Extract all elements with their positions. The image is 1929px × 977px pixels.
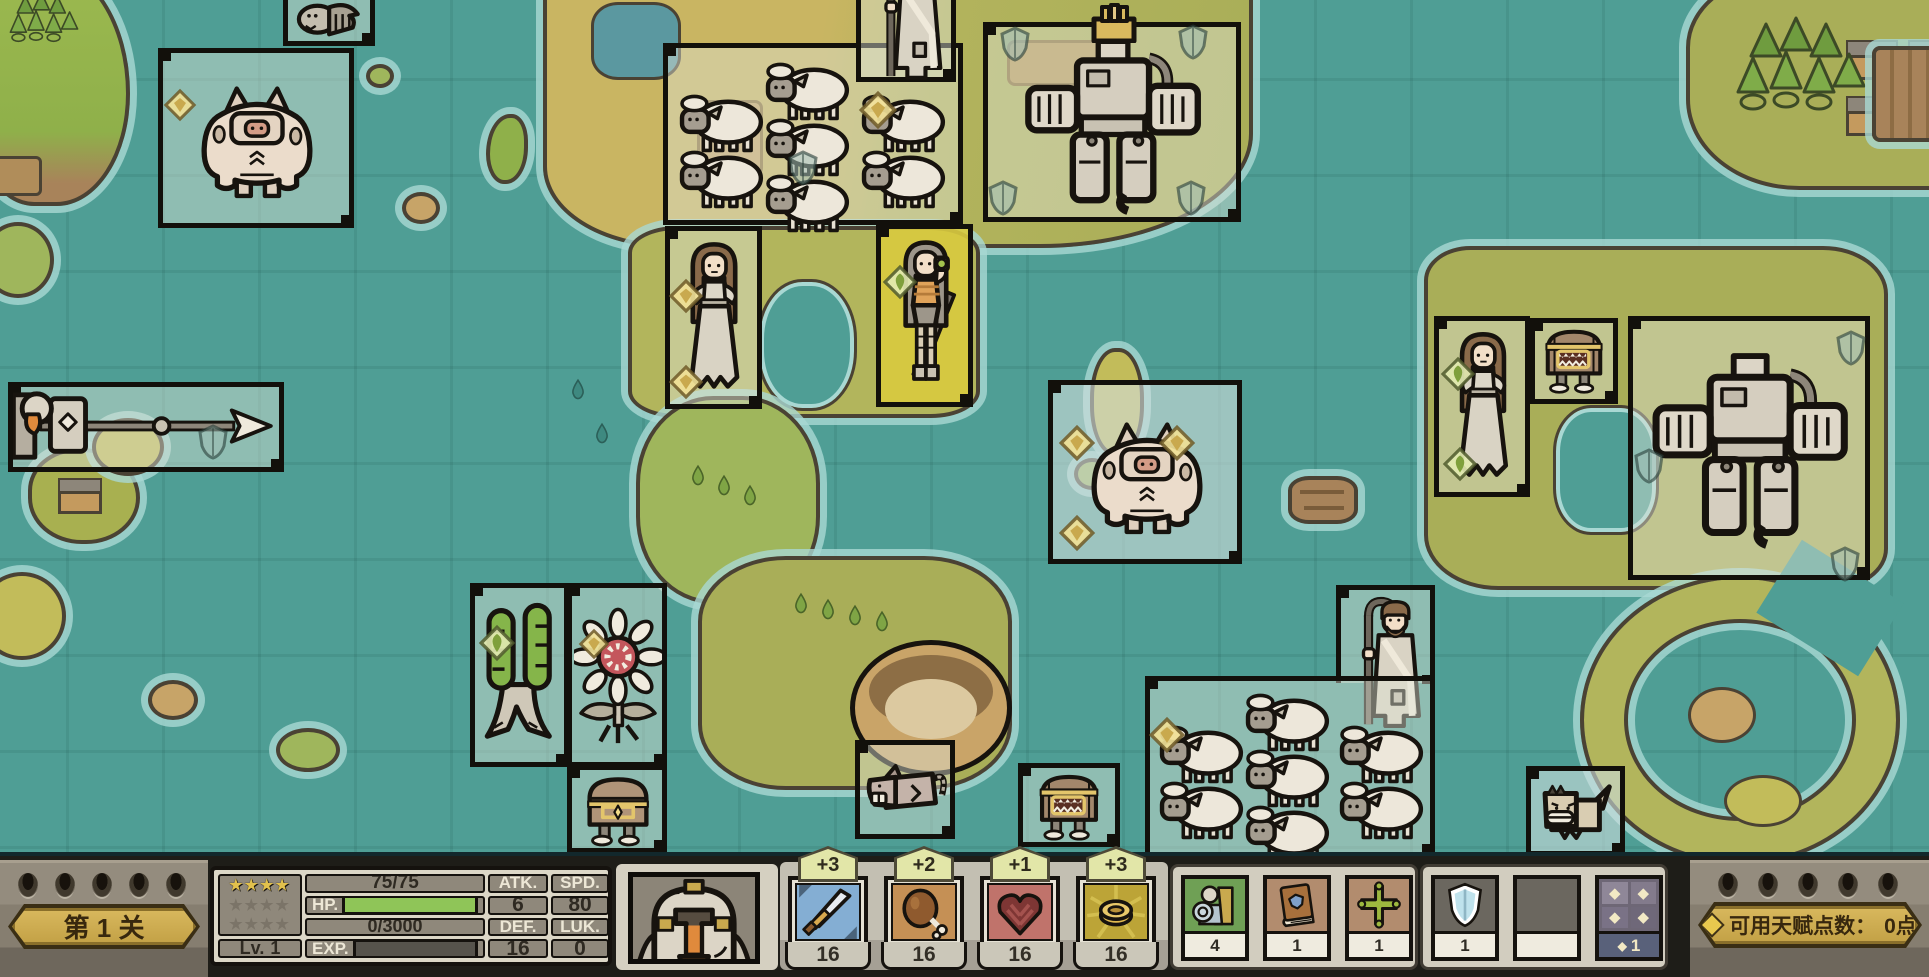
sheep-icon — [674, 92, 768, 154]
level-panel: 第 1 关 — [0, 860, 208, 977]
sheep-icon — [1240, 691, 1334, 753]
unit-tile-mimic-chest-1[interactable] — [1530, 318, 1618, 404]
sheep-icon — [760, 60, 854, 122]
driftwood-log — [1288, 476, 1358, 524]
lagoon-ring — [1580, 575, 1900, 865]
stars-grey: ★★★★ — [229, 898, 291, 913]
pine-forest-icon — [1726, 6, 1876, 136]
shield-buff-icon — [1178, 24, 1208, 60]
talent-diamonds-icon: ◆◆ ◆◆ — [1599, 879, 1659, 931]
def-label: DEF. — [500, 918, 537, 937]
sheep-icon — [856, 148, 950, 210]
unit-tile-shepherd[interactable] — [1336, 585, 1435, 683]
weapon-card-coin[interactable]: +3 — [1076, 876, 1156, 948]
game-screen: 第 1 关 ★★★★ ★★★★ ★★★★ 75/75 ATK. SPD. HP.… — [0, 0, 1929, 977]
rivet-icon — [1878, 873, 1898, 897]
gold-diamond-icon — [163, 88, 197, 122]
monk — [865, 0, 953, 91]
unit-tile-pig-brute-1[interactable] — [158, 48, 354, 228]
item-count — [1517, 931, 1577, 957]
unit-tile-rat[interactable] — [855, 740, 955, 839]
hp-bar — [342, 896, 478, 915]
twin-tree-creature — [477, 594, 563, 758]
item-group-1: 4 1 — [1170, 864, 1418, 970]
unit-tile-twin-tree[interactable] — [470, 583, 569, 767]
sword-icon — [795, 883, 861, 941]
knight-figure-icon — [1185, 879, 1245, 931]
unit-tile-sunflower[interactable] — [567, 583, 667, 767]
shield-buff-icon — [1830, 546, 1860, 582]
rivet-icon — [1798, 873, 1818, 897]
island-small-3 — [366, 64, 394, 88]
item-slot-empty[interactable] — [1513, 875, 1581, 961]
lv-value: 1 — [270, 939, 280, 958]
item-slot-talent-diamonds[interactable]: ◆◆ ◆◆ ◆ 1 — [1595, 875, 1663, 961]
rivet-icon — [55, 873, 75, 897]
item-count: 1 — [1267, 931, 1327, 957]
rivet-icon — [92, 873, 112, 897]
weapon-value: 16 — [1073, 942, 1159, 970]
atk-value: 6 — [512, 896, 524, 915]
unit-tile-sheep-flock-2[interactable] — [1145, 676, 1435, 857]
house-icon — [58, 478, 102, 514]
leaf-diamond-icon — [1440, 356, 1476, 392]
weapon-value: 16 — [977, 942, 1063, 970]
gold-diamond-icon — [668, 278, 704, 314]
book-icon — [1267, 879, 1327, 931]
weapon-card-sword[interactable]: +3 — [788, 876, 868, 948]
shield-buff-icon — [1176, 180, 1206, 216]
gold-diamond-icon — [1158, 424, 1196, 462]
hp-current: 75/75 — [371, 874, 419, 893]
atk-label: ATK. — [499, 874, 537, 893]
unit-tile-chest-walker[interactable] — [567, 765, 667, 853]
stars-grey: ★★★★ — [229, 917, 291, 932]
rivet-icon — [166, 873, 186, 897]
gold-diamond-icon — [1058, 424, 1096, 462]
unit-tile-lance-knight[interactable] — [8, 382, 284, 472]
luk-label: LUK. — [560, 918, 600, 937]
sheep-icon — [1334, 779, 1428, 841]
stars-gold: ★★★★ — [229, 878, 291, 893]
shield-item-icon — [1435, 879, 1495, 931]
shield-buff-icon — [788, 150, 818, 186]
item-slot-knight[interactable]: 4 — [1181, 875, 1249, 961]
gold-diamond-icon — [578, 628, 610, 660]
pig-brute — [191, 71, 323, 203]
item-slot-book[interactable]: 1 — [1263, 875, 1331, 961]
coin-icon — [1083, 883, 1149, 941]
level-banner-label: 第 1 关 — [64, 908, 145, 945]
island-small-1 — [148, 680, 198, 720]
sheep-icon — [674, 148, 768, 210]
leaf-diamond-icon — [882, 264, 918, 300]
sheep-icon — [1240, 747, 1334, 809]
empty-slot — [1517, 879, 1577, 931]
talent-label: 可用天赋点数： — [1729, 910, 1876, 940]
hero-portrait[interactable] — [628, 872, 760, 964]
rat-creature — [862, 757, 950, 823]
mimic-chest — [1537, 325, 1611, 395]
star-rating: ★★★★ ★★★★ ★★★★ — [218, 874, 302, 936]
unit-tile-watchdog[interactable] — [1526, 766, 1625, 856]
knight-helmet-portrait — [631, 879, 757, 964]
spd-label: SPD. — [560, 874, 600, 893]
item-slot-cross[interactable]: 1 — [1345, 875, 1413, 961]
diamond-glyph: ◆ — [1618, 939, 1627, 953]
sunflower-creature — [574, 600, 662, 756]
meat-icon — [891, 883, 957, 941]
rivet-icon — [1838, 873, 1858, 897]
unit-tile-mimic-chest-2[interactable] — [1018, 763, 1120, 847]
item-count: 1 — [1435, 931, 1495, 957]
shield-buff-icon — [1836, 330, 1866, 366]
item-slot-shield[interactable]: 1 — [1431, 875, 1499, 961]
def-value: 16 — [506, 939, 529, 958]
exp-current: 0/3000 — [367, 918, 422, 937]
unit-tile-bird[interactable] — [283, 0, 375, 46]
exp-bar — [353, 939, 478, 958]
rivet-icon — [1758, 873, 1778, 897]
mech-golem — [1022, 35, 1202, 215]
weapon-value: 16 — [785, 942, 871, 970]
unit-tile-monk[interactable] — [856, 0, 956, 82]
talent-banner[interactable]: 可用天赋点数： 0点 — [1698, 902, 1922, 948]
item-count: ◆ 1 — [1599, 931, 1659, 957]
shield-buff-icon — [1634, 448, 1664, 484]
rivet-icon — [129, 873, 149, 897]
weapon-value: 16 — [881, 942, 967, 970]
pine-trees-icon — [4, 0, 84, 56]
rivet-icon — [1718, 873, 1738, 897]
island-small-5 — [402, 192, 440, 224]
mimic-chest — [1031, 770, 1107, 842]
item-count: 1 — [1349, 931, 1409, 957]
rivet-icon — [18, 873, 38, 897]
huntress — [883, 237, 967, 403]
heart-armor-icon — [987, 883, 1053, 941]
wall-structure — [1872, 46, 1929, 142]
talent-panel: 可用天赋点数： 0点 — [1690, 860, 1929, 977]
shield-buff-icon — [1000, 26, 1030, 62]
weapon-card-meat[interactable]: +2 — [884, 876, 964, 948]
leaf-diamond-icon — [1442, 446, 1478, 482]
shield-buff-icon — [198, 424, 228, 460]
talent-diamond-icon — [1699, 912, 1724, 937]
item-group-2: 1 ◆◆ ◆◆ ◆ 1 — [1420, 864, 1668, 970]
unit-tile-mech-2[interactable] — [1628, 316, 1870, 580]
watchdog — [1535, 777, 1621, 847]
gold-diamond-icon — [858, 90, 898, 130]
world-map — [0, 0, 1929, 977]
gold-diamond-icon — [668, 364, 704, 400]
stats-panel: ★★★★ ★★★★ ★★★★ 75/75 ATK. SPD. HP. 6 80 … — [210, 866, 612, 966]
luk-value: 0 — [574, 939, 586, 958]
mech-golem — [1649, 349, 1849, 549]
gold-diamond-icon — [1058, 514, 1096, 552]
spd-value: 80 — [568, 896, 591, 915]
sheep-icon — [1334, 723, 1428, 785]
shield-buff-icon — [988, 180, 1018, 216]
bird-creature — [292, 0, 368, 41]
treasure-chest-walker — [578, 772, 658, 848]
hp-label: HP. — [312, 896, 338, 915]
item-count: 4 — [1185, 931, 1245, 957]
lance-knight — [13, 387, 277, 465]
lv-label: Lv. — [240, 939, 265, 958]
sheep-icon — [1154, 779, 1248, 841]
weapon-card-heart-armor[interactable]: +1 — [980, 876, 1060, 948]
level-banner: 第 1 关 — [8, 904, 200, 949]
island-small-2 — [276, 728, 340, 772]
exp-label: EXP. — [312, 939, 349, 958]
unit-tile-huntress[interactable] — [876, 224, 973, 407]
gold-diamond-icon — [1148, 716, 1186, 754]
cross-icon — [1349, 879, 1409, 931]
leaf-diamond-icon — [478, 624, 516, 662]
